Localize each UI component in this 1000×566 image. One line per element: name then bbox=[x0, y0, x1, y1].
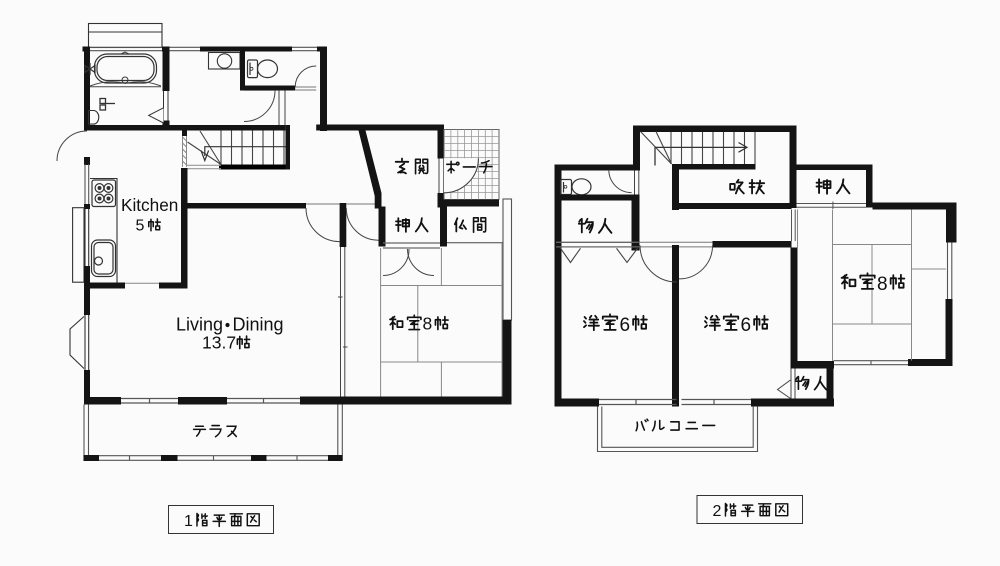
svg-text:13.7: 13.7 bbox=[202, 333, 236, 353]
svg-text:6: 6 bbox=[741, 315, 752, 336]
svg-text:8: 8 bbox=[423, 314, 433, 334]
svg-text:6: 6 bbox=[620, 315, 631, 336]
svg-text:Dining: Dining bbox=[233, 315, 284, 335]
svg-text:8: 8 bbox=[877, 274, 888, 295]
svg-text:5: 5 bbox=[136, 218, 145, 235]
svg-text:Kitchen: Kitchen bbox=[121, 195, 178, 215]
svg-text:2: 2 bbox=[713, 503, 722, 520]
svg-text:Living: Living bbox=[176, 315, 223, 335]
svg-text:1: 1 bbox=[184, 513, 193, 530]
